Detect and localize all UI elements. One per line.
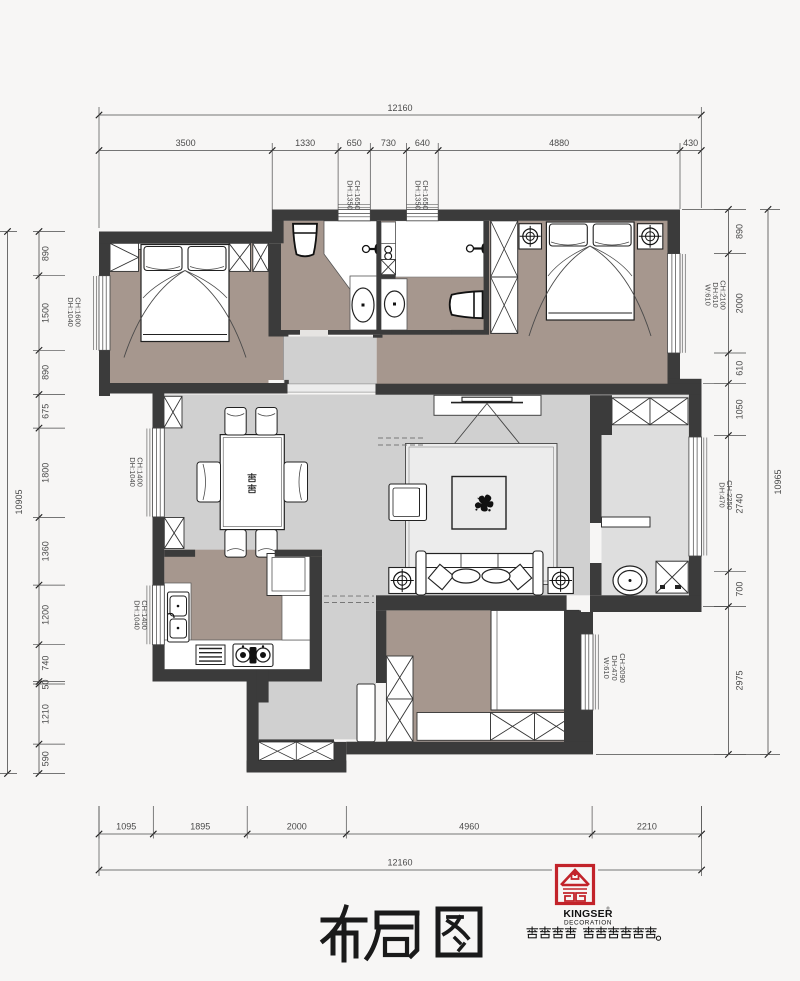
svg-text:2000: 2000 (287, 822, 307, 832)
svg-text:700: 700 (735, 582, 745, 597)
svg-text:590: 590 (41, 751, 51, 766)
svg-text:640: 640 (415, 138, 430, 148)
svg-text:4960: 4960 (459, 822, 479, 832)
svg-text:12160: 12160 (387, 103, 412, 113)
svg-text:650: 650 (347, 138, 362, 148)
svg-text:CH:1400: CH:1400 (140, 600, 149, 630)
svg-text:1500: 1500 (41, 303, 51, 323)
svg-text:890: 890 (735, 224, 745, 239)
svg-text:12160: 12160 (387, 858, 412, 868)
svg-text:1800: 1800 (41, 463, 51, 483)
svg-text:1210: 1210 (41, 704, 51, 724)
svg-text:W:610: W:610 (602, 657, 611, 679)
svg-text:4880: 4880 (549, 138, 569, 148)
svg-text:CH:2250: CH:2250 (725, 480, 734, 510)
svg-text:10905: 10905 (14, 489, 24, 514)
svg-text:1050: 1050 (735, 399, 745, 419)
svg-text:CH:1600: CH:1600 (74, 297, 83, 327)
svg-text:DECORATION: DECORATION (564, 920, 612, 927)
svg-text:675: 675 (41, 404, 51, 419)
svg-text:430: 430 (683, 138, 698, 148)
svg-text:2000: 2000 (735, 293, 745, 313)
svg-text:3500: 3500 (176, 138, 196, 148)
svg-text:2975: 2975 (735, 670, 745, 690)
svg-text:50: 50 (41, 679, 51, 689)
svg-text:740: 740 (41, 656, 51, 671)
svg-text:10965: 10965 (773, 469, 783, 494)
svg-text:730: 730 (381, 138, 396, 148)
svg-text:1895: 1895 (190, 822, 210, 832)
svg-text:1330: 1330 (295, 138, 315, 148)
svg-text:2210: 2210 (637, 822, 657, 832)
svg-text:CH:2100: CH:2100 (719, 280, 728, 310)
svg-text:1360: 1360 (41, 541, 51, 561)
svg-text:890: 890 (41, 365, 51, 380)
svg-text:890: 890 (41, 246, 51, 261)
svg-text:DH:470: DH:470 (610, 655, 619, 680)
svg-text:CH:1400: CH:1400 (136, 457, 145, 487)
svg-text:CH:1650: CH:1650 (421, 180, 430, 210)
svg-text:CH:2090: CH:2090 (618, 653, 627, 683)
svg-text:2740: 2740 (735, 494, 745, 514)
svg-text:CH:1650: CH:1650 (353, 180, 362, 210)
svg-text:1095: 1095 (116, 822, 136, 832)
svg-text:1200: 1200 (41, 605, 51, 625)
svg-text:610: 610 (735, 361, 745, 376)
